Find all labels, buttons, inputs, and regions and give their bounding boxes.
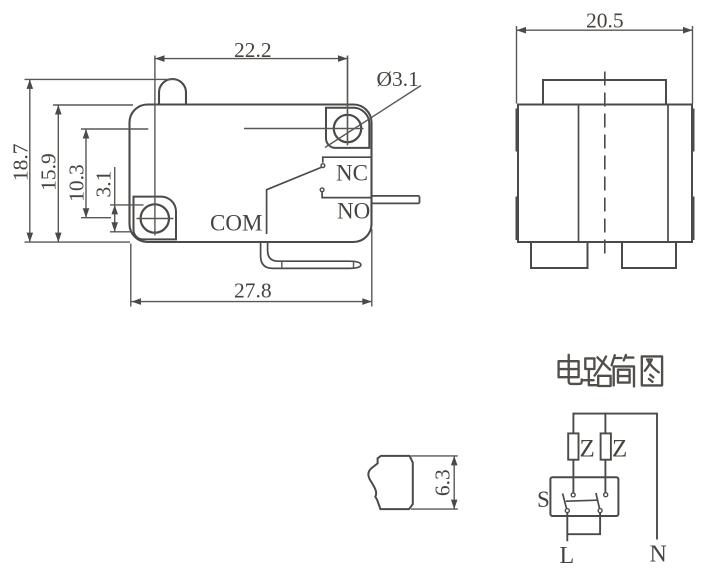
svg-text:27.8: 27.8	[234, 279, 272, 303]
svg-text:3.1: 3.1	[92, 171, 116, 198]
svg-text:S: S	[537, 487, 550, 512]
svg-text:N: N	[650, 542, 667, 568]
svg-text:Ø3.1: Ø3.1	[377, 67, 419, 91]
svg-text:L: L	[560, 543, 575, 569]
svg-text:COM: COM	[210, 211, 262, 236]
svg-text:10.3: 10.3	[65, 164, 89, 202]
svg-text:Z: Z	[612, 436, 627, 463]
svg-text:6.3: 6.3	[431, 469, 455, 496]
svg-text:20.5: 20.5	[586, 9, 624, 33]
svg-text:Z: Z	[580, 436, 595, 463]
svg-text:15.9: 15.9	[37, 153, 61, 191]
svg-text:22.2: 22.2	[234, 38, 272, 62]
svg-text:NO: NO	[337, 199, 370, 224]
svg-text:18.7: 18.7	[9, 143, 33, 181]
svg-text:NC: NC	[336, 161, 368, 186]
